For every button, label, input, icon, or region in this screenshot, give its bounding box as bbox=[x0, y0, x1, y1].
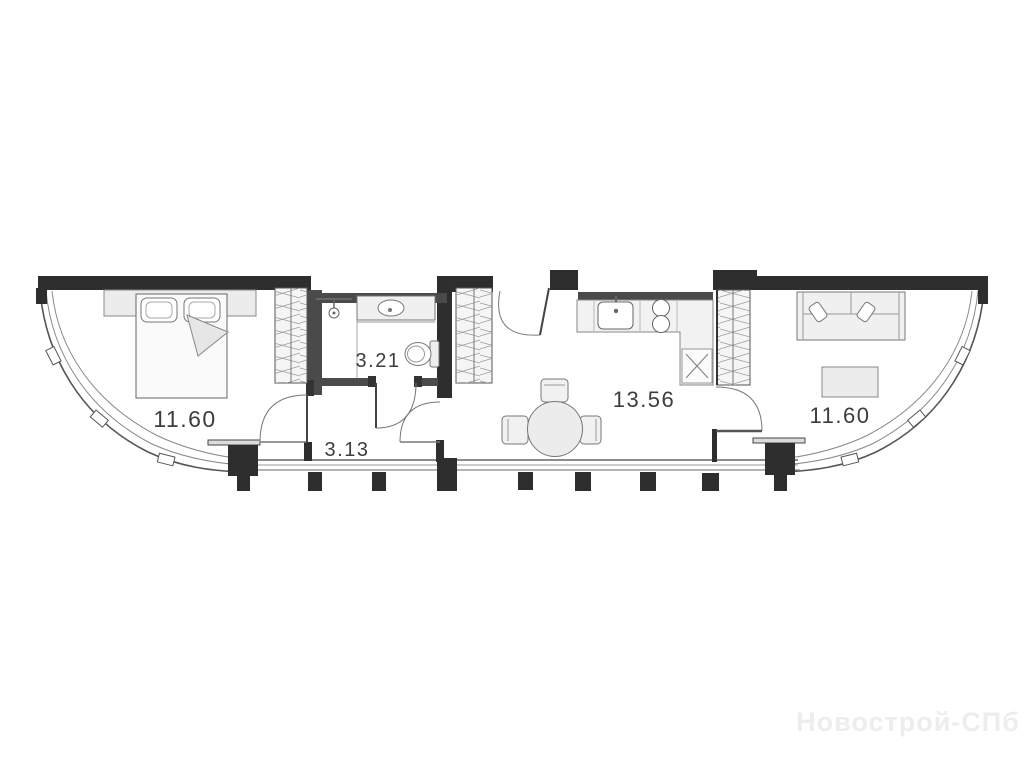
toilet bbox=[405, 341, 439, 367]
living-area-label: 11.60 bbox=[810, 403, 871, 428]
hallway-area-label: 3.13 bbox=[325, 439, 370, 461]
living-room-door bbox=[716, 387, 762, 431]
bathroom-door bbox=[376, 383, 416, 428]
sofa bbox=[797, 292, 905, 340]
watermark-text: Новострой-СПб bbox=[796, 707, 1020, 737]
pillar-left bbox=[208, 440, 260, 491]
wardrobe-living bbox=[717, 290, 750, 385]
appliance-x-icon bbox=[682, 349, 712, 383]
dining-set bbox=[502, 379, 601, 457]
facade-column bbox=[308, 458, 719, 491]
wardrobe-entry bbox=[456, 288, 492, 383]
dining-table bbox=[528, 402, 583, 457]
entry-door bbox=[499, 288, 549, 335]
kitchen-counter bbox=[577, 296, 713, 385]
chair bbox=[541, 379, 568, 402]
kitchen-area-label: 13.56 bbox=[613, 387, 676, 412]
bathroom-area-label: 3.21 bbox=[356, 350, 401, 372]
hall-living-door bbox=[400, 402, 440, 442]
bedroom-door bbox=[260, 395, 307, 442]
wardrobe-bedroom bbox=[275, 288, 307, 383]
floor-plan-drawing: 11.60 3.21 3.13 13.56 11.60 Новострой-СП… bbox=[0, 0, 1024, 768]
chair bbox=[502, 416, 528, 444]
chair bbox=[580, 416, 601, 444]
bed bbox=[104, 290, 256, 398]
bedroom-area-label: 11.60 bbox=[153, 406, 216, 432]
vanity-sink bbox=[357, 296, 435, 322]
coffee-table bbox=[822, 367, 878, 397]
floor-plan-page: 11.60 3.21 3.13 13.56 11.60 Новострой-СП… bbox=[0, 0, 1024, 768]
